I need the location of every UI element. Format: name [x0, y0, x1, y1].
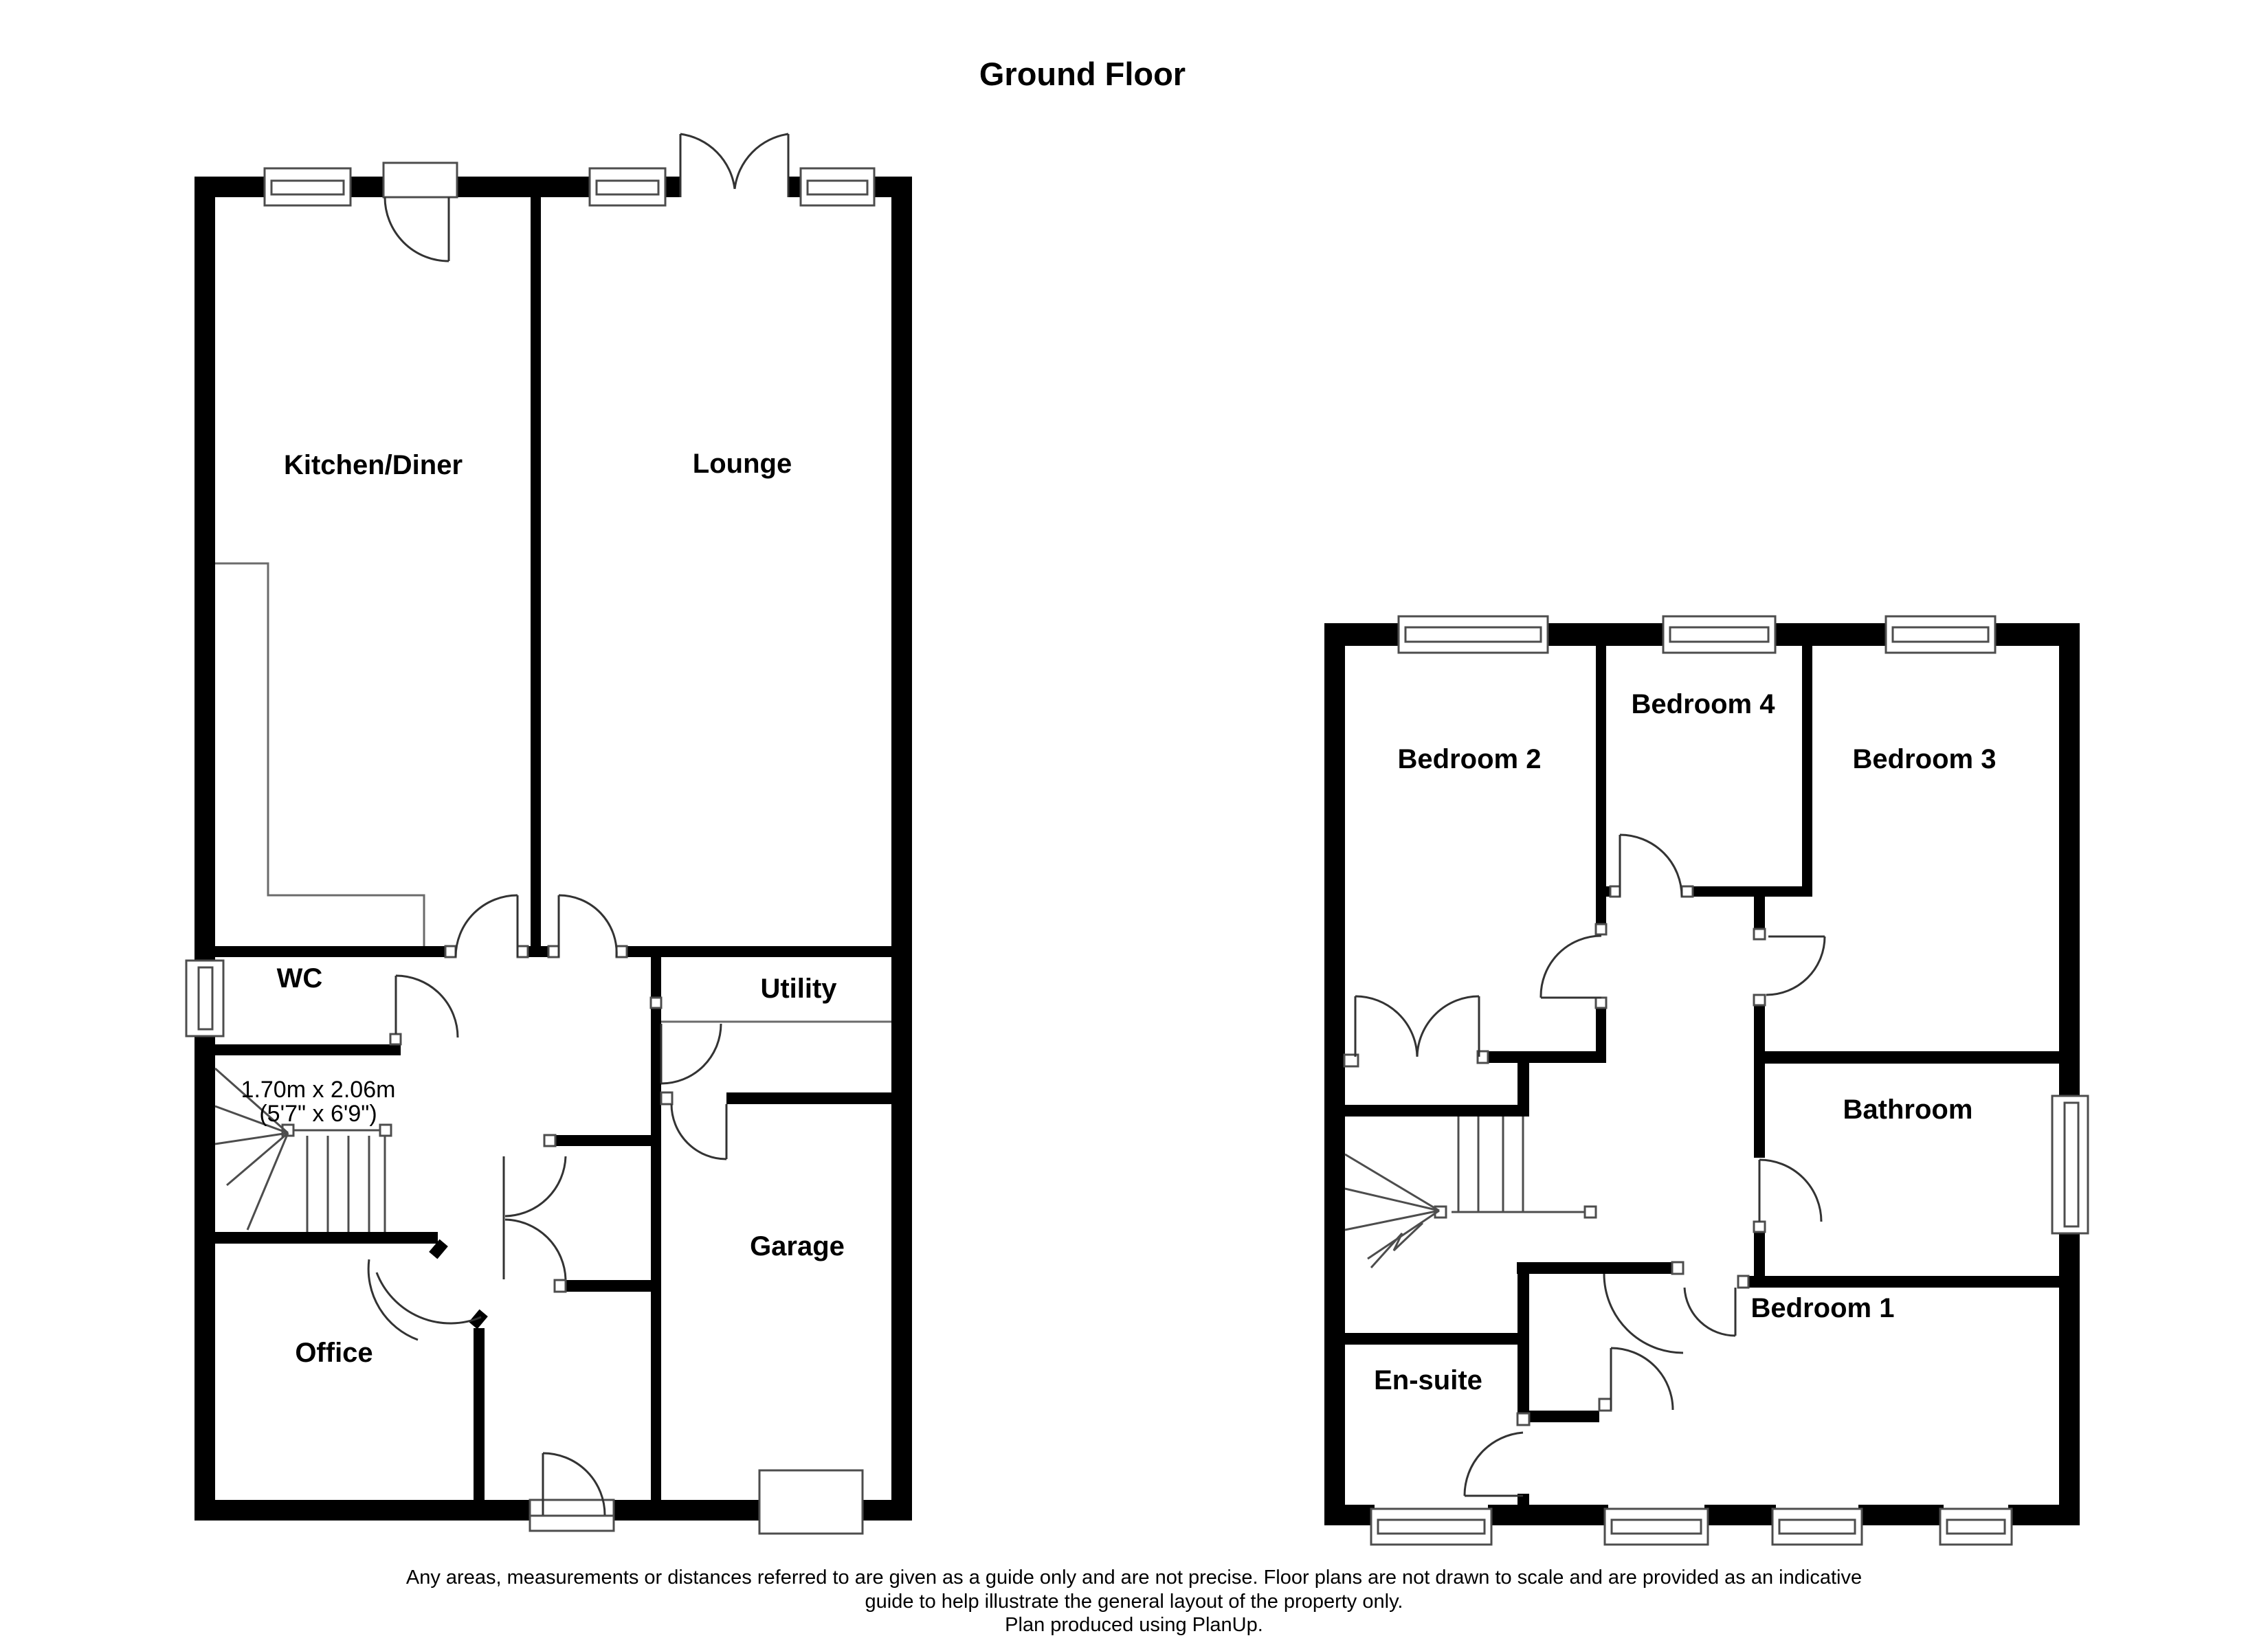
cupboard-doors-icon — [504, 1135, 566, 1292]
disclaimer: Any areas, measurements or distances ref… — [406, 1567, 1862, 1636]
front-door-icon — [529, 1453, 614, 1531]
ground-floor-plan: Kitchen/Diner Lounge WC Utility Garage O… — [186, 134, 912, 1534]
disclaimer-line-1: Any areas, measurements or distances ref… — [406, 1567, 1862, 1589]
window-icon — [265, 168, 351, 205]
door-icon — [1754, 929, 1825, 1005]
door-icon — [661, 1092, 726, 1159]
room-label-utility: Utility — [760, 974, 837, 1004]
disclaimer-line-2: guide to help illustrate the general lay… — [865, 1591, 1403, 1613]
window-icon — [590, 168, 665, 205]
room-label-garage: Garage — [750, 1231, 845, 1261]
door-icon — [548, 895, 627, 957]
door-icon — [390, 976, 458, 1044]
ground-outer-walls — [194, 177, 912, 1521]
room-label-lounge: Lounge — [693, 449, 792, 479]
window-icon — [1772, 1505, 1862, 1545]
window-icon — [1663, 616, 1775, 653]
stairs-dimension-metric: 1.70m x 2.06m — [241, 1077, 396, 1103]
room-label-bedroom3: Bedroom 3 — [1853, 744, 1997, 774]
door-icon — [651, 998, 721, 1084]
first-floor-plan: Bedroom 2 Bedroom 4 Bedroom 3 Bathroom B… — [1324, 616, 2088, 1545]
french-doors-icon — [680, 134, 788, 197]
disclaimer-line-3: Plan produced using PlanUp. — [1005, 1614, 1263, 1636]
window-icon — [801, 168, 874, 205]
room-label-bedroom2: Bedroom 2 — [1398, 744, 1542, 774]
door-icon — [1599, 1348, 1673, 1411]
stairs-dimension-imperial: (5'7" x 6'9") — [259, 1101, 377, 1127]
door-icon — [1465, 1413, 1529, 1496]
room-label-ensuite: En-suite — [1374, 1365, 1482, 1395]
door-icon — [1604, 1262, 1748, 1353]
room-label-office: Office — [295, 1338, 373, 1368]
window-icon — [186, 961, 223, 1036]
room-label-bedroom4: Bedroom 4 — [1632, 689, 1776, 719]
window-icon — [1605, 1505, 1708, 1545]
ground-interior-walls — [215, 197, 891, 1500]
kitchen-boundary-line — [215, 563, 424, 946]
room-label-bedroom1: Bedroom 1 — [1751, 1293, 1895, 1323]
window-icon — [1399, 616, 1548, 653]
door-icon — [1610, 835, 1693, 897]
page-title: Ground Floor — [979, 56, 1186, 92]
door-icon — [1541, 924, 1606, 1008]
window-icon — [1371, 1505, 1491, 1545]
stairs-first — [1345, 1117, 1596, 1268]
door-icon — [445, 895, 528, 957]
room-label-bathroom: Bathroom — [1843, 1095, 1973, 1125]
room-label-kitchen-diner: Kitchen/Diner — [284, 450, 463, 480]
cupboard-doors-icon — [1344, 996, 1488, 1066]
door-icon — [1754, 1160, 1821, 1232]
window-icon — [2052, 1096, 2088, 1233]
door-icon — [383, 163, 457, 261]
room-label-wc: WC — [277, 963, 323, 994]
window-icon — [1940, 1505, 2012, 1545]
garage-door-icon — [759, 1470, 863, 1534]
window-icon — [1886, 616, 1995, 653]
door-icon — [368, 1259, 481, 1340]
